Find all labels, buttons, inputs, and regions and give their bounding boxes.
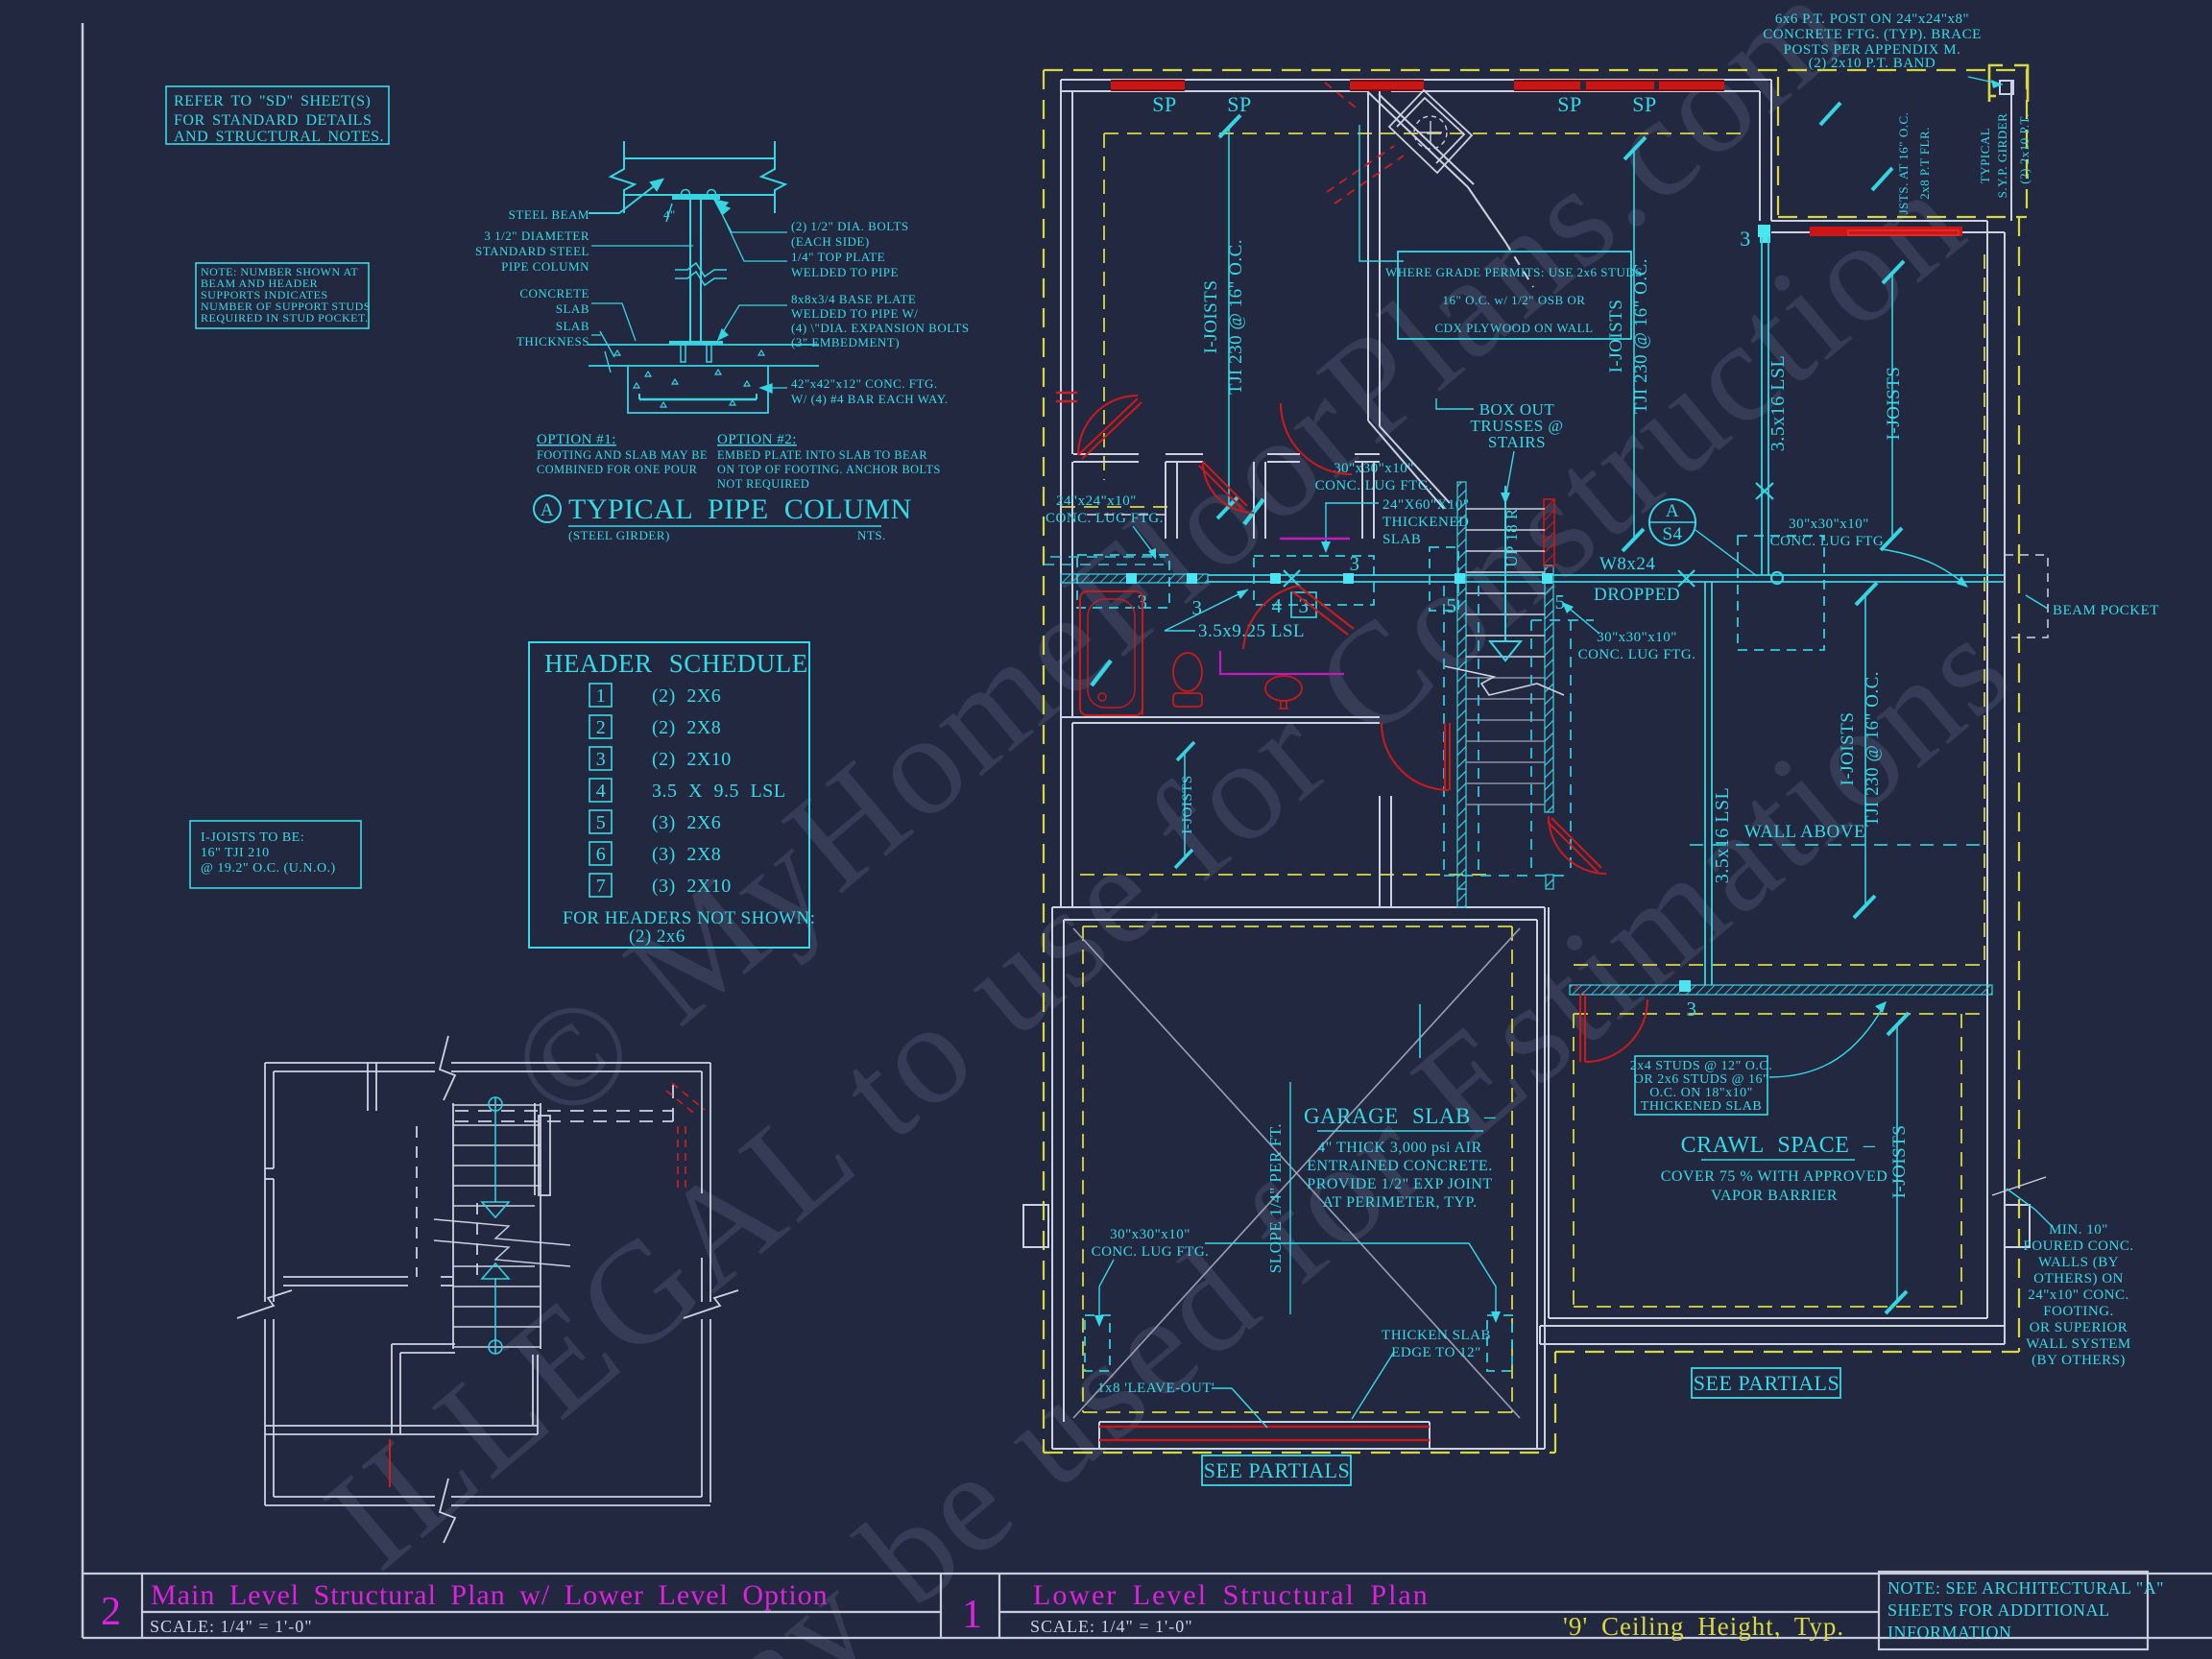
svg-text:3: 3 [596, 749, 607, 770]
svg-text:SLAB: SLAB [556, 301, 589, 316]
svg-text:30"x30"x10": 30"x30"x10" [1597, 630, 1677, 645]
svg-text:WELDED TO PIPE: WELDED TO PIPE [791, 265, 899, 279]
svg-text:CONC. LUG FTG.: CONC. LUG FTG. [1315, 478, 1433, 493]
svg-text:WALLS (BY: WALLS (BY [2038, 1255, 2119, 1270]
svg-text:2x8 P.T FLR.: 2x8 P.T FLR. [1917, 127, 1932, 200]
svg-text:3.5x9.25 LSL: 3.5x9.25 LSL [1198, 621, 1305, 641]
svg-text:(2) 2x10 P.T. BAND: (2) 2x10 P.T. BAND [1809, 56, 1935, 71]
svg-text:AT PERIMETER, TYP.: AT PERIMETER, TYP. [1322, 1194, 1477, 1211]
svg-text:TYPICAL: TYPICAL [1978, 128, 1992, 183]
svg-text:STEEL BEAM: STEEL BEAM [509, 207, 589, 222]
svg-text:CONCRETE: CONCRETE [519, 286, 589, 301]
svg-text:WALL SYSTEM: WALL SYSTEM [2026, 1336, 2131, 1352]
svg-text:EMBED PLATE INTO SLAB TO BEAR: EMBED PLATE INTO SLAB TO BEAR [717, 448, 927, 462]
svg-text:1x8 'LEAVE-OUT': 1x8 'LEAVE-OUT' [1097, 1381, 1214, 1396]
svg-text:30"x30"x10": 30"x30"x10" [1789, 517, 1869, 532]
svg-text:4": 4" [663, 207, 676, 222]
svg-text:S4: S4 [1662, 524, 1682, 544]
svg-text:1: 1 [596, 685, 607, 707]
svg-text:42"x42"x12" CONC. FTG.: 42"x42"x12" CONC. FTG. [791, 376, 938, 391]
svg-text:(2) 2X10: (2) 2X10 [652, 749, 732, 770]
svg-text:NOTE: SEE ARCHITECTURAL "A": NOTE: SEE ARCHITECTURAL "A" [1887, 1578, 2164, 1598]
svg-text:CONC. LUG FTG.: CONC. LUG FTG. [1770, 534, 1888, 549]
svg-text:Main Level Structural Plan w/: Main Level Structural Plan w/ Lower Leve… [151, 1579, 829, 1611]
svg-text:UP 18 R: UP 18 R [1503, 508, 1521, 567]
svg-text:TJI 230 @ 16" O.C.: TJI 230 @ 16" O.C. [1226, 239, 1246, 395]
svg-text:STAIRS: STAIRS [1488, 433, 1546, 451]
svg-text:3: 3 [1350, 552, 1360, 575]
svg-text:EDGE TO 12": EDGE TO 12" [1391, 1345, 1481, 1360]
svg-text:COVER 75 % WITH APPROVED: COVER 75 % WITH APPROVED [1661, 1168, 1888, 1185]
svg-text:3.5x16 LSL: 3.5x16 LSL [1767, 355, 1789, 452]
svg-text:SP: SP [1152, 92, 1176, 116]
svg-text:PIPE COLUMN: PIPE COLUMN [501, 259, 589, 274]
svg-text:2x4 STUDS @ 12" O.C.: 2x4 STUDS @ 12" O.C. [1630, 1059, 1772, 1073]
svg-text:1/4" TOP PLATE: 1/4" TOP PLATE [791, 250, 885, 264]
svg-text:3.5 X 9.5 LSL: 3.5 X 9.5 LSL [652, 781, 786, 802]
svg-text:HEADER SCHEDULE: HEADER SCHEDULE [544, 649, 808, 678]
svg-text:VAPOR BARRIER: VAPOR BARRIER [1711, 1188, 1838, 1204]
svg-text:W8x24: W8x24 [1599, 554, 1655, 574]
svg-text:5: 5 [596, 812, 607, 833]
svg-text:SLOPE 1/4" PER FT.: SLOPE 1/4" PER FT. [1266, 1123, 1285, 1273]
svg-text:OR 2x6 STUDS @ 16": OR 2x6 STUDS @ 16" [1634, 1072, 1768, 1087]
svg-text:I-JOISTS: I-JOISTS [1838, 712, 1858, 786]
svg-text:COMBINED FOR ONE POUR: COMBINED FOR ONE POUR [537, 463, 698, 476]
svg-text:6: 6 [596, 844, 607, 865]
svg-text:CDX PLYWOOD ON WALL: CDX PLYWOOD ON WALL [1434, 321, 1593, 335]
svg-text:POURED CONC.: POURED CONC. [2023, 1238, 2133, 1254]
svg-text:PROVIDE 1/2" EXP JOINT: PROVIDE 1/2" EXP JOINT [1307, 1176, 1492, 1192]
svg-text:AND STRUCTURAL NOTES.: AND STRUCTURAL NOTES. [174, 129, 384, 145]
svg-text:WALL ABOVE: WALL ABOVE [1744, 822, 1865, 842]
svg-text:CRAWL SPACE –: CRAWL SPACE – [1681, 1133, 1876, 1158]
svg-text:FOR HEADERS NOT SHOWN:: FOR HEADERS NOT SHOWN: [563, 908, 815, 928]
svg-text:JSTS. AT 16" O.C.: JSTS. AT 16" O.C. [1896, 112, 1911, 215]
svg-text:MIN. 10": MIN. 10" [2049, 1222, 2108, 1238]
svg-text:SEE PARTIALS: SEE PARTIALS [1694, 1371, 1839, 1395]
svg-text:I-JOISTS: I-JOISTS [1201, 280, 1221, 354]
svg-text:(4) \"DIA. EXPANSION BOLTS: (4) \"DIA. EXPANSION BOLTS [791, 321, 970, 335]
svg-text:16" TJI 210: 16" TJI 210 [201, 846, 270, 860]
svg-text:(3) 2X8: (3) 2X8 [652, 844, 721, 865]
svg-text:SP: SP [1557, 92, 1581, 116]
svg-text:(2) 2x6: (2) 2x6 [629, 926, 685, 947]
svg-text:30"x30"x10": 30"x30"x10" [1110, 1227, 1190, 1242]
svg-text:OPTION #2:: OPTION #2: [717, 432, 797, 447]
svg-text:I-JOISTS: I-JOISTS [1180, 775, 1195, 834]
svg-text:NOT REQUIRED: NOT REQUIRED [717, 477, 809, 491]
svg-text:5: 5 [1447, 594, 1457, 617]
svg-text:WHERE GRADE PERMITS: USE 2x6 S: WHERE GRADE PERMITS: USE 2x6 STUDS [1385, 265, 1643, 279]
svg-text:'9' Ceiling Height, Typ.: '9' Ceiling Height, Typ. [1563, 1612, 1844, 1641]
svg-text:I-JOISTS: I-JOISTS [1889, 1125, 1910, 1199]
svg-text:3: 3 [1687, 998, 1697, 1021]
svg-text:STANDARD STEEL: STANDARD STEEL [475, 244, 589, 258]
svg-text:@ 19.2" O.C. (U.N.O.): @ 19.2" O.C. (U.N.O.) [201, 861, 336, 876]
svg-text:NTS.: NTS. [857, 528, 886, 542]
svg-text:REFER TO "SD" SHEET(S): REFER TO "SD" SHEET(S) [174, 93, 371, 109]
svg-text:CONC. LUG FTG.: CONC. LUG FTG. [1578, 647, 1696, 662]
svg-text:CONC. LUG FTG.: CONC. LUG FTG. [1046, 511, 1164, 526]
svg-text:(2) 1/2" DIA. BOLTS: (2) 1/2" DIA. BOLTS [791, 219, 909, 233]
svg-text:6x6 P.T. POST ON 24"x24"x8": 6x6 P.T. POST ON 24"x24"x8" [1775, 12, 1969, 27]
svg-text:(2) 2X6: (2) 2X6 [652, 685, 721, 707]
svg-text:I-JOISTS: I-JOISTS [1606, 300, 1626, 373]
svg-text:2: 2 [101, 1590, 121, 1634]
svg-text:16" O.C. w/ 1/2" OSB OR: 16" O.C. w/ 1/2" OSB OR [1443, 293, 1586, 307]
svg-text:GARAGE SLAB –: GARAGE SLAB – [1304, 1104, 1496, 1128]
svg-text:ON TOP OF FOOTING. ANCHOR BOLT: ON TOP OF FOOTING. ANCHOR BOLTS [717, 463, 941, 476]
svg-text:A: A [1666, 501, 1679, 521]
svg-text:SCALE: 1/4" = 1'-0": SCALE: 1/4" = 1'-0" [1030, 1617, 1193, 1636]
svg-text:SP: SP [1632, 92, 1656, 116]
svg-text:4: 4 [596, 781, 607, 802]
svg-text:24"X60"X10": 24"X60"X10" [1382, 497, 1470, 513]
svg-text:THICKENED: THICKENED [1382, 515, 1469, 530]
svg-text:24"x10" CONC.: 24"x10" CONC. [2028, 1287, 2128, 1303]
svg-text:TJI 230 @ 16" O.C.: TJI 230 @ 16" O.C. [1863, 671, 1883, 827]
svg-text:(BY OTHERS): (BY OTHERS) [2032, 1353, 2126, 1368]
svg-text:24"x24"x10": 24"x24"x10" [1056, 493, 1137, 509]
svg-text:ENTRAINED CONCRETE.: ENTRAINED CONCRETE. [1307, 1158, 1492, 1174]
svg-text:4" THICK 3,000 psi AIR: 4" THICK 3,000 psi AIR [1317, 1140, 1481, 1156]
svg-text:SCALE: 1/4" = 1'-0": SCALE: 1/4" = 1'-0" [150, 1617, 313, 1636]
svg-text:I-JOISTS: I-JOISTS [1884, 367, 1904, 441]
svg-text:7: 7 [596, 876, 607, 897]
svg-text:OR SUPERIOR: OR SUPERIOR [2030, 1320, 2128, 1335]
svg-text:SP: SP [1227, 92, 1251, 116]
svg-text:OTHERS) ON: OTHERS) ON [2033, 1271, 2124, 1286]
svg-text:8x8x3/4 BASE PLATE: 8x8x3/4 BASE PLATE [791, 292, 916, 306]
svg-text:REQUIRED IN STUD POCKET.: REQUIRED IN STUD POCKET. [201, 311, 368, 325]
svg-text:OPTION #1:: OPTION #1: [537, 432, 616, 447]
svg-text:INFORMATION: INFORMATION [1887, 1623, 2012, 1642]
svg-text:I-JOISTS TO BE:: I-JOISTS TO BE: [201, 830, 304, 845]
svg-text:O.C. ON 18"x10": O.C. ON 18"x10" [1649, 1086, 1753, 1100]
svg-text:3: 3 [1740, 227, 1751, 251]
svg-text:THICKENED SLAB: THICKENED SLAB [1641, 1099, 1762, 1114]
svg-text:(3) 2X6: (3) 2X6 [652, 812, 721, 833]
svg-text:TJI 230 @ 16" O.C.: TJI 230 @ 16" O.C. [1631, 258, 1651, 414]
svg-text:1: 1 [962, 1593, 982, 1637]
svg-text:FOOTING.: FOOTING. [2043, 1304, 2114, 1319]
svg-text:(EACH SIDE): (EACH SIDE) [791, 234, 870, 249]
svg-text:BEAM POCKET: BEAM POCKET [2053, 603, 2159, 618]
svg-text:A: A [541, 500, 554, 520]
svg-text:SHEETS FOR ADDITIONAL: SHEETS FOR ADDITIONAL [1887, 1600, 2110, 1620]
svg-text:CONC. LUG FTG.: CONC. LUG FTG. [1092, 1244, 1210, 1260]
svg-text:THICKEN SLAB: THICKEN SLAB [1382, 1328, 1491, 1343]
svg-text:TYPICAL PIPE COLUMN: TYPICAL PIPE COLUMN [568, 493, 912, 525]
svg-text:SLAB: SLAB [556, 319, 589, 333]
svg-text:DROPPED: DROPPED [1594, 585, 1680, 605]
svg-text:(2) 2x10 P.T.: (2) 2x10 P.T. [2017, 113, 2032, 183]
svg-text:(2) 2X8: (2) 2X8 [652, 717, 721, 738]
svg-text:(3" EMBEDMENT): (3" EMBEDMENT) [791, 335, 900, 349]
svg-text:(3) 2X10: (3) 2X10 [652, 876, 732, 897]
svg-text:SLAB: SLAB [1382, 532, 1421, 547]
svg-text:2: 2 [596, 717, 607, 738]
svg-text:SEE PARTIALS: SEE PARTIALS [1204, 1458, 1350, 1482]
svg-text:S.Y.P. GIRDER: S.Y.P. GIRDER [1995, 113, 2009, 199]
svg-text:W/ (4) #4 BAR EACH WAY.: W/ (4) #4 BAR EACH WAY. [791, 392, 949, 406]
svg-text:(STEEL GIRDER): (STEEL GIRDER) [568, 528, 670, 542]
svg-text:Lower Level Structural Plan: Lower Level Structural Plan [1033, 1579, 1430, 1611]
svg-text:FOOTING AND SLAB MAY BE: FOOTING AND SLAB MAY BE [537, 448, 708, 462]
svg-text:3 1/2" DIAMETER: 3 1/2" DIAMETER [484, 228, 589, 243]
svg-text:CONCRETE FTG. (TYP). BRACE: CONCRETE FTG. (TYP). BRACE [1763, 27, 1982, 42]
svg-text:WELDED TO PIPE W/: WELDED TO PIPE W/ [791, 306, 918, 321]
svg-text:THICKNESS: THICKNESS [517, 334, 589, 349]
svg-text:5: 5 [1555, 590, 1566, 613]
svg-text:FOR STANDARD DETAILS: FOR STANDARD DETAILS [174, 112, 372, 129]
svg-text:3.5x16 LSL: 3.5x16 LSL [1712, 787, 1733, 884]
